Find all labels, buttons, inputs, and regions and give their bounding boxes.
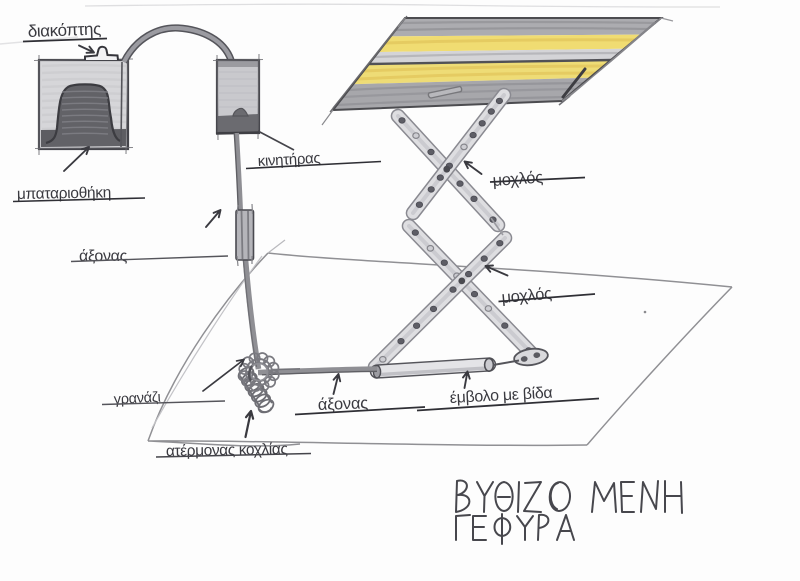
svg-text:ατέρμονας κοχλίας: ατέρμονας κοχλίας — [166, 441, 288, 460]
svg-text:γρανάζι: γρανάζι — [113, 390, 161, 408]
svg-text:διακόπτης: διακόπτης — [27, 19, 101, 41]
svg-text:άξονας: άξονας — [79, 248, 128, 265]
